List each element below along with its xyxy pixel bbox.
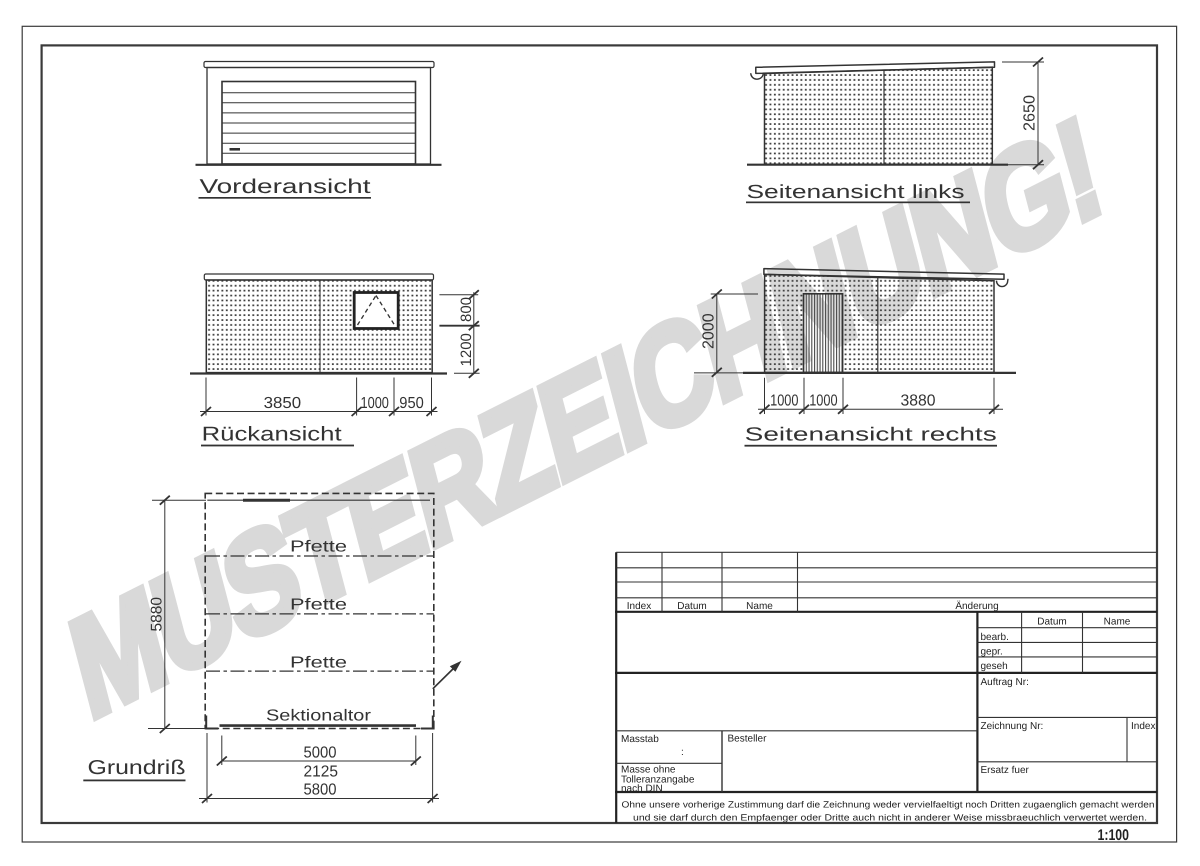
svg-text:geseh: geseh <box>981 661 1008 672</box>
svg-text:2000: 2000 <box>701 313 718 349</box>
svg-text:Sektionaltor: Sektionaltor <box>266 708 372 725</box>
svg-text:800: 800 <box>458 297 475 322</box>
svg-text:Index: Index <box>627 601 651 612</box>
svg-text:5000: 5000 <box>304 745 337 762</box>
svg-text:Vorderansicht: Vorderansicht <box>200 176 372 198</box>
svg-text:3850: 3850 <box>264 395 302 412</box>
svg-text:Masstab: Masstab <box>621 734 659 745</box>
svg-text:3880: 3880 <box>901 393 936 410</box>
svg-text:Datum: Datum <box>1037 617 1066 628</box>
svg-text:1:100: 1:100 <box>1098 827 1130 844</box>
svg-text:Datum: Datum <box>677 601 706 612</box>
svg-text:Änderung: Änderung <box>955 600 998 612</box>
svg-text:Pfette: Pfette <box>290 597 347 614</box>
svg-text:Ersatz fuer: Ersatz fuer <box>981 765 1030 776</box>
svg-text:Seitenansicht rechts: Seitenansicht rechts <box>745 425 997 446</box>
svg-text:1000: 1000 <box>809 393 837 410</box>
svg-text:5880: 5880 <box>149 597 166 632</box>
svg-text:nach DIN: nach DIN <box>621 784 663 795</box>
svg-text:2125: 2125 <box>304 764 339 781</box>
svg-text:1000: 1000 <box>770 393 798 410</box>
svg-text:1200: 1200 <box>458 333 475 366</box>
svg-text:Ohne unsere vorherige Zustimmu: Ohne unsere vorherige Zustimmung darf di… <box>622 800 1155 810</box>
svg-text:5800: 5800 <box>304 782 337 799</box>
svg-text:Pfette: Pfette <box>290 655 347 672</box>
svg-text:Name: Name <box>1104 617 1131 628</box>
svg-text:gepr.: gepr. <box>981 647 1003 658</box>
svg-text:Rückansicht: Rückansicht <box>202 424 343 446</box>
svg-text:950: 950 <box>399 395 424 412</box>
svg-text:und sie darf durch den Empfaen: und sie darf durch den Empfaenger oder D… <box>633 812 1147 822</box>
svg-text:Grundriß: Grundriß <box>88 757 186 779</box>
svg-text:Auftrag Nr:: Auftrag Nr: <box>981 677 1029 688</box>
svg-text::: : <box>681 747 684 758</box>
svg-text:1000: 1000 <box>361 395 389 412</box>
svg-text:Index: Index <box>1131 721 1155 732</box>
svg-text:Zeichnung Nr:: Zeichnung Nr: <box>981 721 1044 732</box>
svg-text:Pfette: Pfette <box>290 539 347 556</box>
svg-text:Seitenansicht links: Seitenansicht links <box>747 182 965 203</box>
svg-text:Name: Name <box>746 601 773 612</box>
svg-text:bearb.: bearb. <box>981 632 1009 643</box>
svg-text:2650: 2650 <box>1022 95 1039 131</box>
svg-text:Besteller: Besteller <box>728 734 768 745</box>
